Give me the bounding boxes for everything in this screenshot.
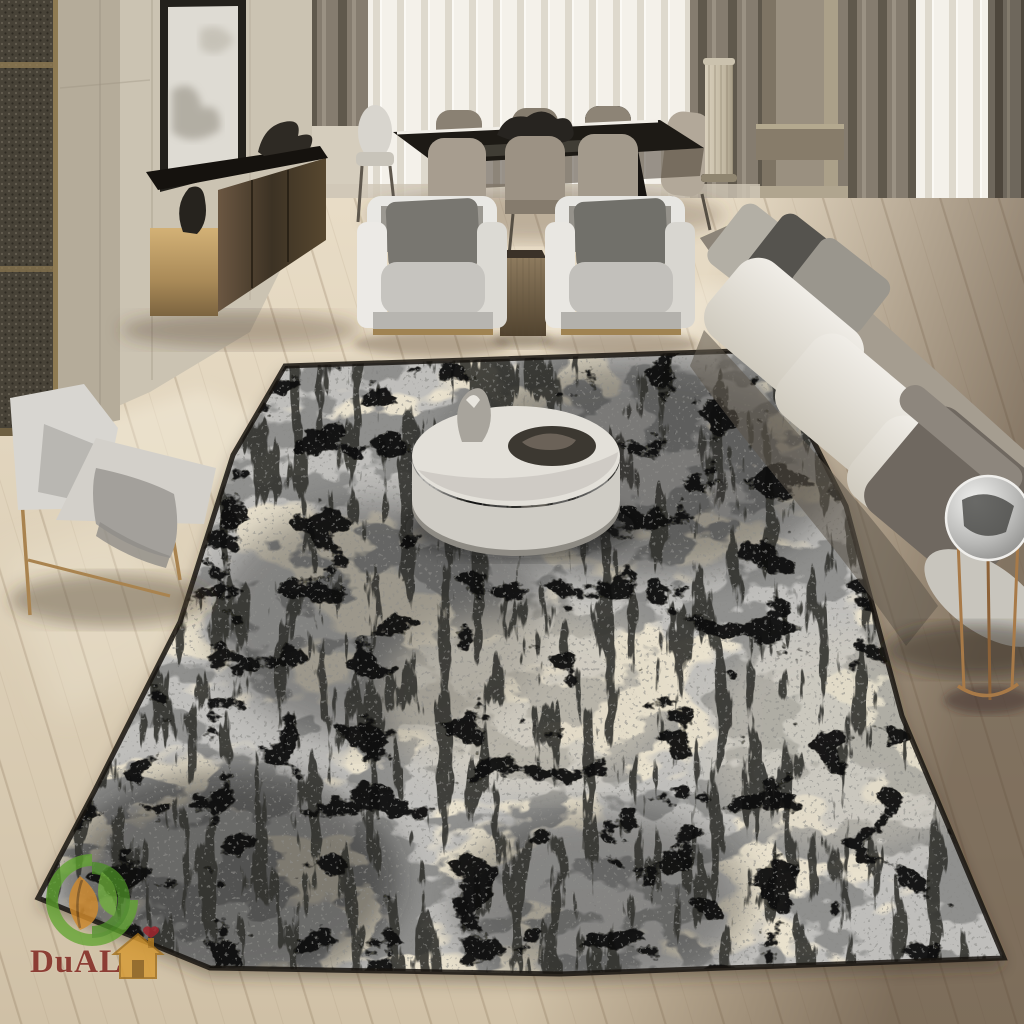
living-room-photo: DuALi: [0, 0, 1024, 1024]
floor-lamp: [701, 58, 737, 182]
throw-pillow: [573, 198, 668, 271]
armchair-right: [542, 196, 698, 356]
inner-leaf-icon: [69, 876, 98, 930]
brand-watermark: DuALi: [26, 848, 176, 1000]
brass-base: [373, 329, 493, 335]
house-icon: [110, 924, 166, 984]
brass-base: [561, 329, 681, 335]
heart-icon: [143, 926, 159, 938]
throw-pillow: [385, 198, 480, 271]
stone-column: [750, 0, 848, 218]
mesh-wall-panel: [0, 0, 58, 436]
armchair-left: [354, 196, 510, 356]
